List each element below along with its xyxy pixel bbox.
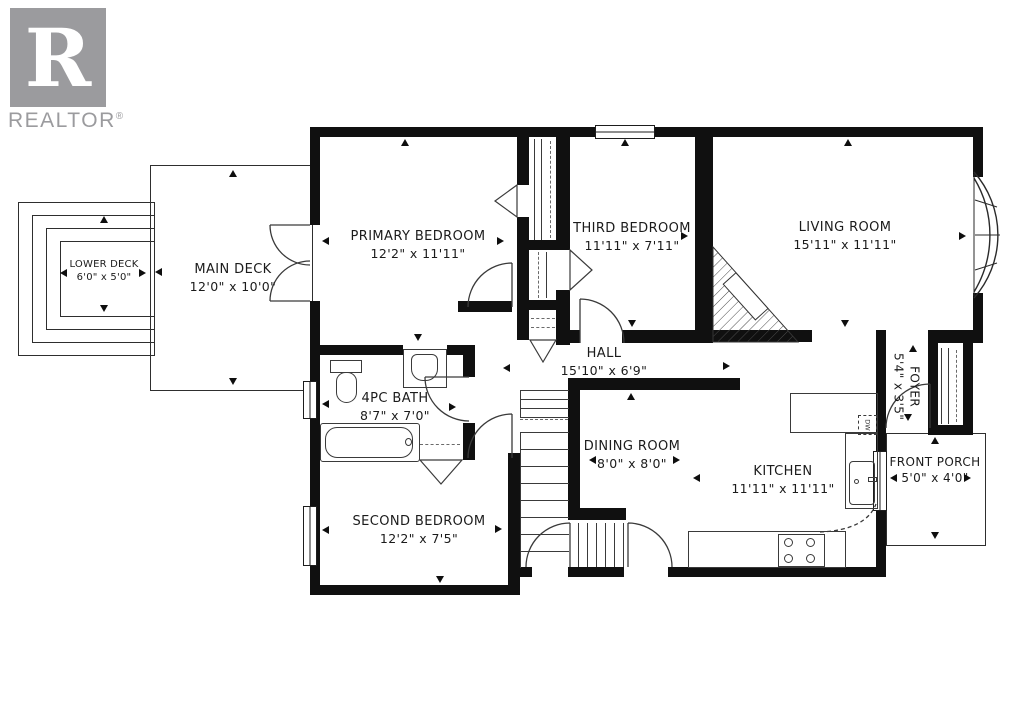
dimension-arrow (322, 400, 329, 408)
bathroom-sink (411, 354, 438, 381)
sliding-door-line (534, 139, 535, 240)
dimension-arrow (100, 216, 108, 223)
bifold-door-primary-closet (495, 185, 517, 217)
room-name: MAIN DECK (190, 262, 277, 279)
dimension-arrow (155, 268, 162, 276)
room-label-kitchen: KITCHEN 11'11" x 11'11" (731, 464, 834, 497)
dimension-arrow (909, 345, 917, 352)
dimension-arrow (964, 474, 971, 482)
dimension-arrow (904, 414, 912, 421)
room-name: SECOND BEDROOM (352, 514, 485, 531)
wall (458, 301, 512, 312)
bifold-door-second-closet (420, 460, 462, 484)
dimension-arrow (229, 170, 237, 177)
dimension-arrow (621, 139, 629, 146)
wall (514, 567, 532, 577)
wall (695, 137, 713, 342)
wall (963, 343, 973, 435)
stove-burner (806, 554, 815, 563)
realtor-logo-wordmark: REALTOR® (8, 109, 125, 133)
kitchen-sink (849, 461, 875, 505)
staircase-landing (578, 523, 624, 567)
bay-window (974, 172, 1000, 298)
staircase-upper (520, 390, 569, 418)
room-name: 4PC BATH (360, 391, 430, 408)
dimension-arrow (841, 320, 849, 327)
room-dims: 15'10" x 6'9" (561, 363, 648, 379)
dimension-arrow (959, 232, 966, 240)
sliding-door-dash (550, 141, 551, 238)
room-dims: 12'0" x 10'0" (190, 279, 277, 295)
dimension-arrow (628, 320, 636, 327)
room-label-hall: HALL 15'10" x 6'9" (561, 346, 648, 379)
registered-mark: ® (116, 111, 125, 122)
room-name: FOYER (906, 353, 922, 420)
room-dims: 11'11" x 11'11" (731, 481, 834, 497)
dimension-arrow (723, 362, 730, 370)
room-dims: 12'2" x 11'11" (351, 246, 486, 262)
dimension-arrow (693, 474, 700, 482)
wall (668, 567, 886, 577)
dimension-arrow (60, 269, 67, 277)
room-dims: 8'7" x 7'0" (360, 408, 430, 424)
sliding-door-line (541, 139, 542, 240)
back-door (628, 523, 672, 567)
stove-burner (806, 538, 815, 547)
floor-plan: R REALTOR® (0, 0, 1024, 726)
room-dims: 8'0" x 8'0" (584, 456, 680, 472)
dishwasher-label: DW (864, 419, 872, 430)
sink-drain (854, 479, 859, 484)
stove-burner (784, 538, 793, 547)
dimension-arrow (449, 403, 456, 411)
wall (463, 423, 475, 460)
room-name: KITCHEN (731, 464, 834, 481)
room-dims: 15'11" x 11'11" (793, 237, 896, 253)
wall (310, 137, 320, 225)
bifold-door-third-closet (570, 250, 592, 290)
room-name: LIVING ROOM (793, 220, 896, 237)
dimension-arrow (681, 232, 688, 240)
room-name: HALL (561, 346, 648, 363)
wall (928, 425, 973, 435)
room-dims: 6'0" x 5'0" (70, 271, 139, 284)
room-dims: 12'2" x 7'5" (352, 531, 485, 547)
bathtub-faucet (405, 438, 412, 446)
wall (568, 385, 580, 518)
closet-dash (538, 252, 539, 298)
dimension-arrow (890, 474, 897, 482)
dimension-arrow (414, 334, 422, 341)
room-name: PRIMARY BEDROOM (351, 229, 486, 246)
dimension-arrow (436, 576, 444, 583)
room-dims: 11'11" x 7'11" (573, 238, 691, 254)
dimension-arrow (503, 364, 510, 372)
window (303, 381, 317, 419)
room-label-foyer: FOYER 5'4" x 3'5" (890, 353, 921, 420)
room-label-dining-room: DINING ROOM 8'0" x 8'0" (584, 439, 680, 472)
wall (463, 345, 475, 377)
room-name: LOWER DECK (70, 258, 139, 271)
window (595, 125, 655, 139)
window (303, 506, 317, 566)
linen-shelf-dash (531, 327, 555, 328)
dimension-arrow (673, 456, 680, 464)
dimension-arrow (139, 269, 146, 277)
wall (928, 343, 938, 435)
room-name: FRONT PORCH (889, 455, 980, 471)
realtor-logo-letter: R (25, 18, 91, 98)
staircase-lower (520, 432, 569, 568)
room-label-bath: 4PC BATH 8'7" x 7'0" (360, 391, 430, 424)
sliding-door-dash (956, 350, 957, 422)
room-dims: 5'4" x 3'5" (890, 353, 906, 420)
dimension-arrow (589, 456, 596, 464)
wall (517, 310, 529, 340)
sliding-door-line (941, 348, 942, 424)
dimension-arrow (931, 437, 939, 444)
dimension-arrow (495, 525, 502, 533)
linen-shelf-dash (531, 318, 555, 319)
dimension-arrow (497, 237, 504, 245)
wall (695, 330, 812, 342)
toilet-bowl (336, 372, 357, 403)
room-name: THIRD BEDROOM (573, 221, 691, 238)
room-label-main-deck: MAIN DECK 12'0" x 10'0" (190, 262, 277, 295)
wall (568, 567, 624, 577)
front-porch-outline (886, 433, 986, 546)
room-label-lower-deck: LOWER DECK 6'0" x 5'0" (70, 258, 139, 284)
sliding-door-line (948, 348, 949, 424)
dimension-arrow (401, 139, 409, 146)
dimension-arrow (322, 237, 329, 245)
dimension-arrow (844, 139, 852, 146)
sink-faucet (868, 477, 877, 482)
bifold-door-linen-closet (530, 340, 556, 362)
fireplace (713, 247, 798, 342)
wall (556, 330, 580, 343)
wall (973, 293, 983, 343)
wall (556, 137, 570, 250)
third-bedroom-door (580, 299, 624, 343)
dimension-arrow (931, 532, 939, 539)
room-label-primary-bedroom: PRIMARY BEDROOM 12'2" x 11'11" (351, 229, 486, 262)
closet-shelf-dash (420, 444, 460, 445)
dimension-arrow (627, 393, 635, 400)
dimension-arrow (322, 526, 329, 534)
dimension-arrow (100, 305, 108, 312)
closet-line (546, 252, 547, 298)
wall (517, 137, 529, 185)
wall (310, 345, 403, 355)
stove-burner (784, 554, 793, 563)
room-label-living-room: LIVING ROOM 15'11" x 11'11" (793, 220, 896, 253)
wall (568, 378, 740, 390)
room-label-third-bedroom: THIRD BEDROOM 11'11" x 7'11" (573, 221, 691, 254)
bathtub-inner (325, 427, 413, 458)
room-label-second-bedroom: SECOND BEDROOM 12'2" x 7'5" (352, 514, 485, 547)
room-name: DINING ROOM (584, 439, 680, 456)
wall (310, 585, 520, 595)
stair-break-line (520, 419, 568, 420)
wall (973, 137, 983, 177)
dimension-arrow (229, 378, 237, 385)
wall (568, 508, 626, 520)
realtor-logo-icon: R (10, 8, 106, 107)
